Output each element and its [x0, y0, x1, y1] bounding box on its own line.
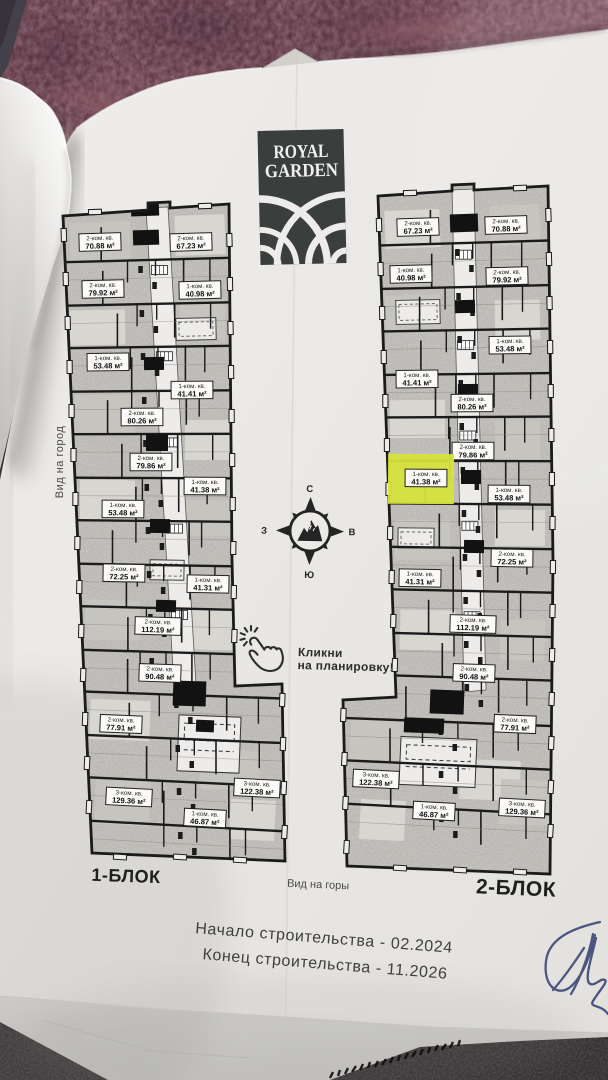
- svg-text:112.19 м²: 112.19 м²: [141, 625, 175, 635]
- svg-text:40.98 м²: 40.98 м²: [396, 273, 426, 283]
- svg-text:67.23 м²: 67.23 м²: [176, 241, 206, 251]
- svg-text:80.26 м²: 80.26 м²: [127, 416, 157, 425]
- svg-text:77.91 м²: 77.91 м²: [500, 723, 530, 733]
- svg-text:90.48 м²: 90.48 м²: [459, 672, 489, 682]
- svg-text:41.41 м²: 41.41 м²: [177, 389, 207, 398]
- svg-text:80.26 м²: 80.26 м²: [457, 402, 487, 411]
- svg-text:41.38 м²: 41.38 м²: [411, 477, 441, 486]
- svg-text:122.38 м²: 122.38 м²: [240, 787, 274, 798]
- svg-text:41.38 м²: 41.38 м²: [190, 485, 220, 494]
- svg-text:41.41 м²: 41.41 м²: [402, 378, 432, 387]
- svg-text:79.86 м²: 79.86 м²: [458, 450, 488, 459]
- svg-text:40.98 м²: 40.98 м²: [185, 289, 215, 299]
- svg-text:С: С: [306, 484, 313, 495]
- svg-text:122.38 м²: 122.38 м²: [359, 778, 393, 789]
- svg-text:129.36 м²: 129.36 м²: [112, 796, 146, 807]
- svg-text:53.48 м²: 53.48 м²: [108, 508, 138, 517]
- svg-text:Ю: Ю: [304, 570, 314, 581]
- svg-text:72.25 м²: 72.25 м²: [497, 557, 527, 566]
- svg-text:46.87 м²: 46.87 м²: [419, 810, 449, 821]
- svg-text:на планировку!: на планировку!: [297, 658, 394, 675]
- svg-text:70.88 м²: 70.88 м²: [491, 224, 521, 234]
- svg-text:90.48 м²: 90.48 м²: [145, 672, 175, 682]
- svg-text:53.48 м²: 53.48 м²: [93, 361, 123, 370]
- svg-text:53.48 м²: 53.48 м²: [494, 493, 524, 502]
- svg-text:41.31 м²: 41.31 м²: [405, 577, 435, 587]
- svg-text:67.23 м²: 67.23 м²: [403, 226, 433, 236]
- svg-text:53.48 м²: 53.48 м²: [495, 344, 525, 353]
- svg-text:72.25 м²: 72.25 м²: [109, 572, 139, 582]
- svg-text:Вид на город: Вид на город: [54, 426, 66, 499]
- svg-text:В: В: [348, 527, 355, 538]
- svg-text:70.88 м²: 70.88 м²: [85, 241, 115, 251]
- svg-text:З: З: [261, 526, 267, 537]
- svg-text:46.87 м²: 46.87 м²: [190, 817, 220, 828]
- svg-text:79.92 м²: 79.92 м²: [88, 288, 118, 298]
- svg-text:1-БЛОК: 1-БЛОК: [91, 865, 161, 887]
- svg-text:GARDEN: GARDEN: [265, 160, 339, 183]
- svg-text:41.31 м²: 41.31 м²: [193, 583, 223, 593]
- svg-text:2-БЛОК: 2-БЛОК: [475, 875, 556, 901]
- svg-text:129.36 м²: 129.36 м²: [505, 807, 539, 818]
- svg-text:79.86 м²: 79.86 м²: [136, 461, 166, 470]
- svg-text:79.92 м²: 79.92 м²: [492, 275, 522, 285]
- svg-text:112.19 м²: 112.19 м²: [456, 623, 490, 633]
- svg-text:77.91 м²: 77.91 м²: [106, 723, 136, 733]
